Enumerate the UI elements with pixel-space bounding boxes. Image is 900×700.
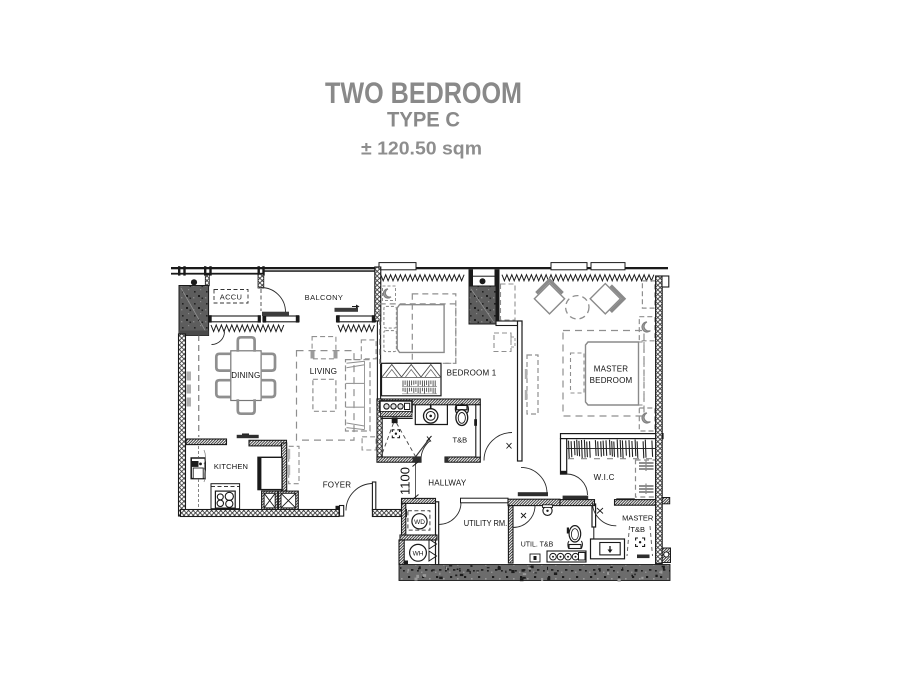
svg-text:UTIL. T&B: UTIL. T&B	[521, 542, 554, 549]
svg-text:WD: WD	[414, 519, 425, 526]
svg-text:WH: WH	[413, 550, 424, 557]
svg-text:W.I.C: W.I.C	[594, 473, 615, 482]
svg-text:UTILITY RM.: UTILITY RM.	[464, 519, 508, 528]
svg-text:BALCONY: BALCONY	[305, 293, 344, 302]
svg-text:TWO BEDROOM: TWO BEDROOM	[325, 77, 522, 110]
svg-text:T&B: T&B	[453, 436, 468, 445]
svg-text:T&B: T&B	[630, 525, 645, 534]
svg-text:DINING: DINING	[231, 371, 260, 380]
svg-text:1100: 1100	[398, 467, 413, 495]
svg-text:MASTER: MASTER	[594, 365, 629, 374]
svg-text:± 120.50 sqm: ± 120.50 sqm	[361, 139, 482, 159]
svg-text:LIVING: LIVING	[310, 367, 337, 376]
svg-text:KITCHEN: KITCHEN	[214, 462, 248, 471]
svg-text:MASTER: MASTER	[622, 513, 654, 522]
svg-text:BEDROOM 1: BEDROOM 1	[447, 369, 497, 378]
svg-text:FOYER: FOYER	[323, 481, 352, 490]
svg-text:HALLWAY: HALLWAY	[428, 479, 467, 488]
svg-text:TYPE C: TYPE C	[387, 109, 460, 132]
svg-text:ACCU: ACCU	[220, 293, 242, 302]
svg-text:BEDROOM: BEDROOM	[590, 376, 633, 385]
